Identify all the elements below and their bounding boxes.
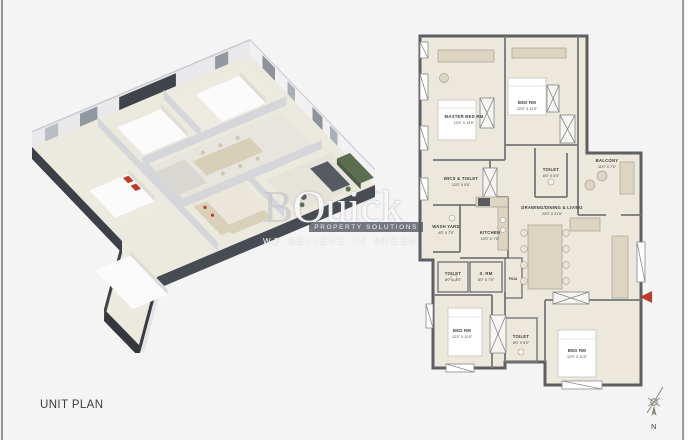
- room-label-puja: PUJA: [509, 277, 518, 281]
- room-dims-bed-bl: 12'0" X 11'0": [452, 335, 473, 339]
- room-dims-toilet-2: 8'0" X 5'0": [445, 278, 462, 282]
- compass-north-label: N: [651, 422, 656, 431]
- room-label-bed-top: BED RM: [518, 100, 536, 105]
- isometric-3d-floorplan: [25, 29, 397, 353]
- room-label-bed-br: BED RM: [568, 348, 586, 353]
- room-dims-servant-room: 8'0" X 7'0": [478, 278, 495, 282]
- room-label-balcony: BALCONY: [596, 158, 619, 163]
- 2d-floorplan: MASTER BED RM 12'0" X 13'0" BED RM 12'0"…: [416, 30, 652, 394]
- room-dims-wash-yard: 4'0" X 7'0": [438, 231, 455, 235]
- room-label-wash-yard: WASH YARD: [432, 224, 460, 229]
- page-edge-left: [1, 0, 3, 440]
- room-dims-master-bed: 12'0" X 13'0": [454, 121, 475, 125]
- room-dims-wics: 12'0" X 5'0": [452, 183, 471, 187]
- page-title: UNIT PLAN: [40, 399, 103, 411]
- room-label-bed-bl: BED RM: [453, 328, 471, 333]
- compass-north-icon: N: [636, 382, 672, 434]
- room-label-toilet-3: TOILET: [513, 334, 530, 339]
- room-label-toilet-2: TOILET: [445, 271, 462, 276]
- unit-plan-page: MASTER BED RM 12'0" X 13'0" BED RM 12'0"…: [0, 0, 690, 440]
- room-label-servant-room: S. RM: [480, 271, 493, 276]
- room-dims-living: 22'0" X 21'0": [542, 212, 563, 216]
- room-label-toilet-1: TOILET: [543, 167, 560, 172]
- room-dims-bed-top: 12'0" X 11'0": [517, 107, 538, 111]
- room-label-kitchen: KITCHEN: [480, 230, 501, 235]
- room-label-wics: WICS & TOILET: [444, 176, 479, 181]
- room-dims-bed-br: 12'0" X 11'0": [567, 355, 588, 359]
- room-label-living: DRAWING/DINING & LIVING: [521, 205, 583, 210]
- page-edge-right: [682, 0, 684, 440]
- room-dims-toilet-1: 8'0" X 5'0": [543, 174, 560, 178]
- room-dims-toilet-3: 8'0" X 5'0": [513, 341, 530, 345]
- room-dims-kitchen: 12'0" X 7'0": [481, 237, 500, 241]
- room-label-master-bed: MASTER BED RM: [445, 114, 484, 119]
- page-edge-margin: [685, 0, 690, 440]
- room-dims-balcony: 11'0" X 7'0": [598, 165, 617, 169]
